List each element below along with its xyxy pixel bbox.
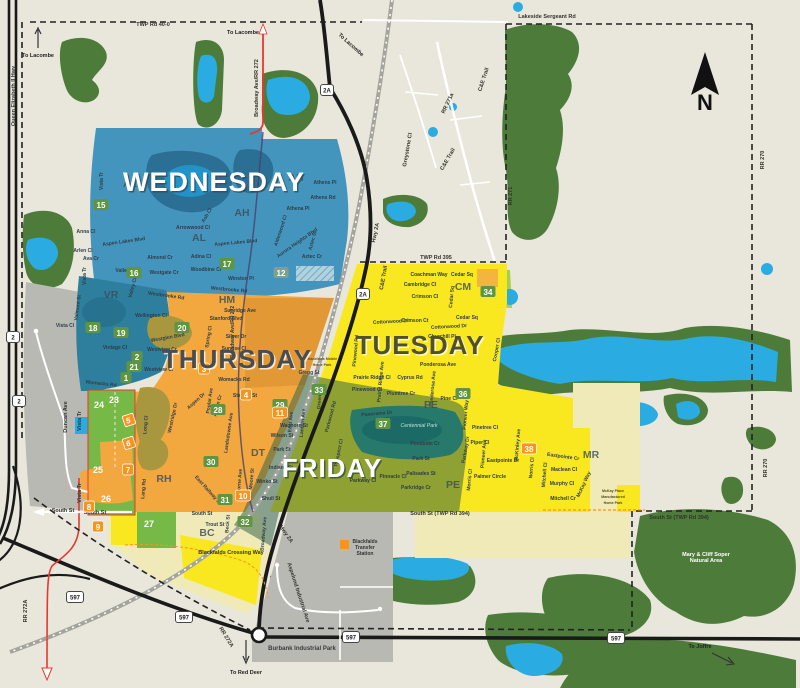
- zone-badge-number: 17: [223, 260, 232, 269]
- street-label: Cedar Sq: [456, 315, 478, 321]
- street-label: Shull St: [262, 496, 281, 502]
- zone-badge-number: 11: [276, 409, 285, 418]
- zone-badge-number: 32: [241, 518, 250, 527]
- street-label: Almond Cr: [147, 255, 173, 261]
- road-label: South St (TWP Rd 394): [410, 511, 470, 517]
- street-label: Vista Tr: [82, 267, 88, 285]
- street-label: Ava Cr: [83, 256, 99, 262]
- zone-27-green: [137, 512, 176, 548]
- street-label: Palmer Circle: [474, 474, 506, 480]
- road-label: Vista Tr: [77, 482, 83, 503]
- road-label: South St: [52, 508, 75, 514]
- zone-badge-number: 9: [96, 523, 101, 532]
- zone-badge-number: 1: [124, 374, 129, 383]
- street-label: Cyprus Rd: [397, 375, 422, 381]
- highway-shield-number: 597: [179, 616, 190, 622]
- zone-badge-number: 16: [130, 269, 139, 278]
- zone-south-strip: [415, 512, 630, 558]
- zone-badge-number: 15: [97, 201, 106, 210]
- zone-number: 27: [144, 519, 154, 529]
- zone-badge-number: 7: [126, 466, 131, 475]
- zone-badge-number: 19: [117, 329, 126, 338]
- day-label: FRIDAY: [282, 453, 382, 483]
- street-label: Silver Dr: [226, 334, 247, 340]
- road-label: RR 270: [763, 459, 769, 478]
- zone-badge-number: 4: [244, 391, 249, 400]
- street-label: Cambridge Cl: [404, 282, 437, 288]
- street-label: Wellington Cl: [135, 313, 167, 319]
- road-label: Queen Elizabeth II Hwy: [11, 65, 17, 126]
- direction-label: To Lacombe: [22, 53, 54, 59]
- area-code: BC: [199, 527, 215, 539]
- zone-badge-number: 12: [277, 269, 286, 278]
- street-label: Stanford Blvd: [210, 316, 243, 322]
- area-code: PE: [424, 399, 438, 411]
- street-label: Prairie Ridge Cl: [353, 375, 391, 381]
- street-label: Sunridge Ave: [224, 308, 256, 314]
- street-label: Adina Cl: [191, 254, 212, 260]
- road-label: Broadway Ave/RR 272: [254, 59, 260, 117]
- direction-label: To Red Deer: [230, 670, 263, 676]
- street-label: Womacks Rd: [218, 377, 249, 383]
- highway-shield-number: 597: [611, 637, 622, 643]
- street-label: Westgate Cr: [149, 270, 178, 276]
- highway-shield-number: 597: [346, 636, 357, 642]
- zone-number: 25: [93, 465, 103, 475]
- zone-badge-number: 20: [178, 324, 187, 333]
- transfer-station-icon: [340, 540, 349, 549]
- street-label: Crimson Cl: [412, 294, 439, 300]
- road-label: Blackfalds Crossing Way: [198, 550, 264, 556]
- zone-badge-number: 8: [87, 503, 92, 512]
- area-code: CM: [455, 281, 472, 293]
- street-label: Pinetree Cl: [472, 425, 499, 431]
- street-label: Winko St: [256, 479, 278, 485]
- street-label: Park St: [412, 456, 430, 462]
- street-label: Athens Pl: [313, 180, 337, 186]
- street-label: Murphy Cl: [550, 481, 575, 487]
- zone-badge-number: 37: [379, 420, 388, 429]
- zone-badge-number: 28: [214, 406, 223, 415]
- road-label: South St (TWP Rd 394): [649, 515, 709, 521]
- roundabout: [252, 628, 266, 642]
- zone-badge-number: 34: [484, 288, 493, 297]
- direction-label: To Joffre: [688, 644, 711, 650]
- zone-number: 24: [94, 400, 104, 410]
- zone-number: 26: [101, 494, 111, 504]
- area-code: HM: [219, 294, 236, 306]
- street-label: Vista Cl: [56, 323, 75, 329]
- day-label: THURSDAY: [162, 344, 312, 374]
- street-label: Athens Rd: [311, 195, 336, 201]
- road-label: TWP Rd 395: [420, 255, 452, 261]
- street-label: Parkridge Cr: [401, 485, 431, 491]
- highway-shield-number: 597: [70, 596, 81, 602]
- street-label: South St: [192, 511, 213, 517]
- area-code: RH: [156, 473, 171, 485]
- zone-badge-number: 36: [459, 390, 468, 399]
- mckay-place-label: McKay PlaceManufacturedHome Park: [601, 489, 625, 505]
- zone-badge-number: 18: [89, 324, 98, 333]
- north-label: N: [697, 90, 713, 115]
- street-label: Pinewood Cl: [352, 387, 383, 393]
- street-label: Coachman Way: [410, 272, 447, 278]
- zone-bc-yellow: [111, 512, 137, 545]
- street-label: Palisades St: [406, 471, 436, 477]
- road-label: RR 272A: [23, 600, 29, 623]
- street-label: Pondside Cr: [410, 441, 440, 447]
- road-label: Duncan Ave: [63, 401, 69, 432]
- road-label: Vista Tr: [77, 410, 83, 431]
- street-label: Vintage Cl: [103, 345, 128, 351]
- area-code: AL: [192, 232, 207, 244]
- area-code: VR: [104, 289, 119, 301]
- zone-number: 23: [109, 395, 119, 405]
- zone-badge-number: 33: [315, 386, 324, 395]
- street-label: Arlen Cl: [73, 248, 93, 254]
- burbank-label: Burbank Industrial Park: [268, 646, 336, 652]
- centennial-park-label: Centennial Park: [401, 423, 438, 429]
- zone-badge-number: 31: [221, 496, 230, 505]
- area-code: PE: [446, 479, 460, 491]
- road-label: Lakeside Sergeant Rd: [518, 14, 575, 20]
- highway-shield-number: 2A: [323, 89, 331, 95]
- street-label: Cedar Sq: [451, 272, 473, 278]
- street-label: Ponderosa Ave: [420, 362, 456, 368]
- street-label: Athena Pl: [286, 206, 310, 212]
- zone-badge-number: 2: [135, 353, 140, 362]
- street-label: Vista Tr: [99, 172, 105, 190]
- map-canvas: N BlackfaldsTransferStation Mary & Cliff…: [0, 0, 800, 688]
- street-label: Wilson St: [271, 433, 294, 439]
- street-label: Mitchell Cr: [550, 496, 576, 502]
- centennial-pond: [362, 416, 442, 444]
- highway-shield-number: 2A: [359, 293, 367, 299]
- street-label: Waghorn St: [280, 423, 308, 429]
- block-cm-orange: [477, 269, 498, 287]
- road-label: RR 270: [760, 151, 766, 170]
- day-label: WEDNESDAY: [123, 167, 305, 197]
- area-code: AH: [234, 207, 249, 219]
- zone-badge-number: 10: [239, 492, 248, 501]
- road-label: RR 271: [508, 187, 514, 206]
- street-label: Winston Pl: [228, 276, 254, 282]
- collection-zone-map: N BlackfaldsTransferStation Mary & Cliff…: [0, 0, 800, 688]
- hatch-12: [296, 266, 334, 281]
- area-code: DT: [251, 447, 266, 459]
- direction-label: To Lacombe: [227, 30, 259, 36]
- area-code: MR: [583, 449, 600, 461]
- street-label: Plumtree Cr: [387, 391, 415, 397]
- street-label: Anna Cl: [77, 229, 97, 235]
- zone-badge-number: 21: [130, 363, 139, 372]
- street-label: Aztec Cr: [302, 254, 322, 260]
- zone-badge-number: 30: [207, 458, 216, 467]
- street-label: Arrowwood Cl: [176, 225, 210, 231]
- street-label: Maclean Cl: [551, 467, 578, 473]
- zone-badge-number: 38: [525, 445, 534, 454]
- street-label: Pine Cl: [441, 396, 459, 402]
- road-label: TWP Rd 40-0: [136, 22, 170, 28]
- street-label: Woodbine Cl: [191, 267, 222, 273]
- day-label: TUESDAY: [356, 330, 485, 360]
